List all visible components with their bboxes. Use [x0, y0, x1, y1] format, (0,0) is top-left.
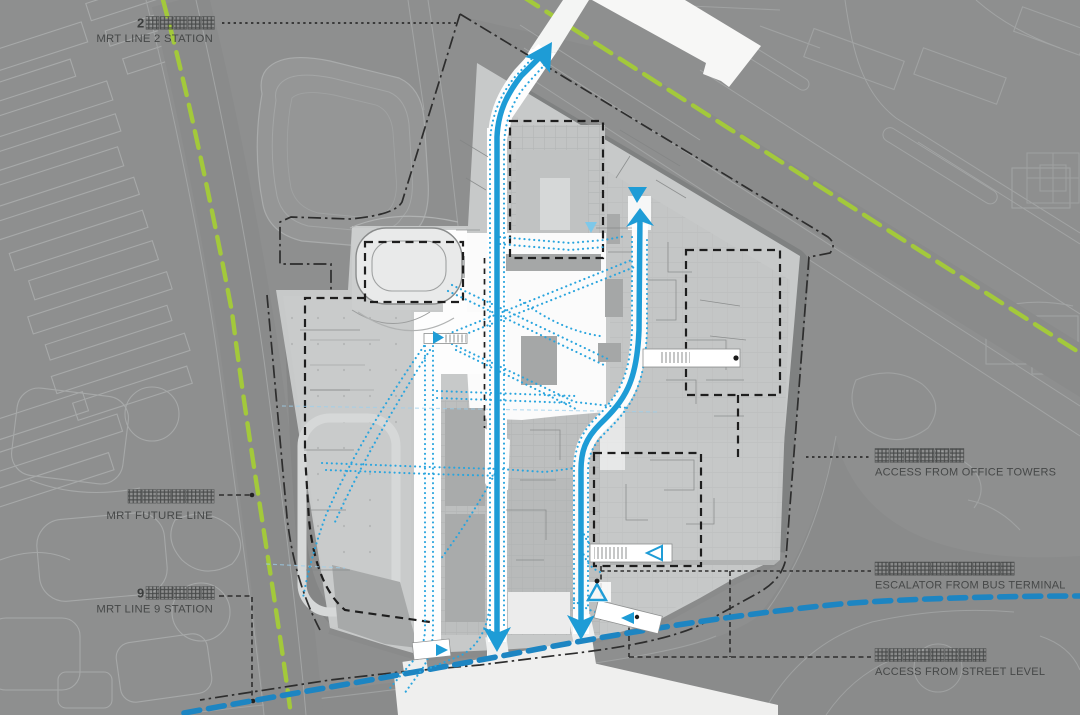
svg-text:9: 9: [137, 586, 144, 601]
svg-text:MRT LINE 9 STATION: MRT LINE 9 STATION: [96, 604, 213, 616]
svg-text:2: 2: [137, 16, 144, 31]
svg-text:MRT FUTURE LINE: MRT FUTURE LINE: [106, 510, 213, 522]
svg-text:ESCALATOR FROM BUS TERMINAL: ESCALATOR FROM BUS TERMINAL: [875, 580, 1066, 592]
svg-text:ACCESS FROM STREET LEVEL: ACCESS FROM STREET LEVEL: [875, 666, 1045, 678]
svg-text:MRT LINE 2 STATION: MRT LINE 2 STATION: [96, 33, 213, 45]
svg-text:ACCESS FROM OFFICE TOWERS: ACCESS FROM OFFICE TOWERS: [875, 467, 1056, 479]
